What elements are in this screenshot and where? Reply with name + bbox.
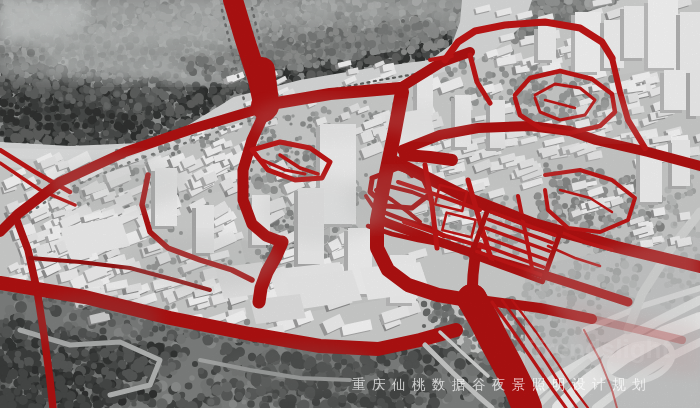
svg-text:重庆仙桃数据谷夜景照明设计规划: 重庆仙桃数据谷夜景照明设计规划 (352, 377, 652, 392)
